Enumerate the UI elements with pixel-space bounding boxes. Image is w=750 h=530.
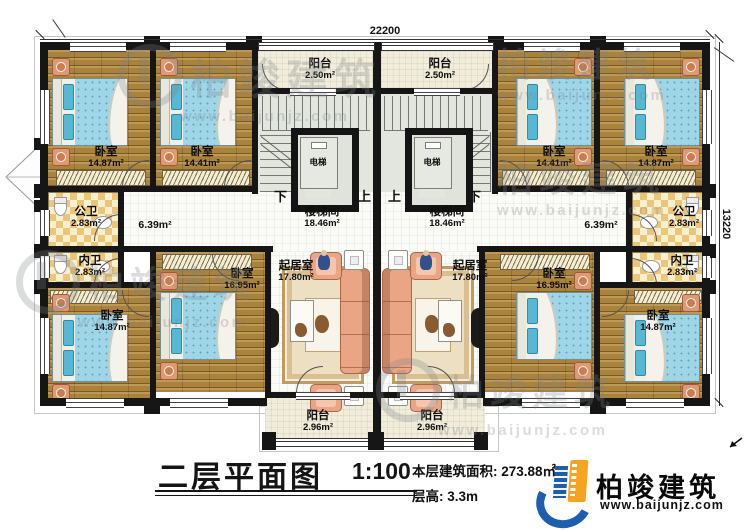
nightstand	[574, 362, 592, 380]
room-label-corridor: 6.39m²	[133, 220, 177, 232]
room-label-balcony: 阳台2.96m²	[293, 410, 343, 433]
sheet-scale: 1:100	[352, 458, 411, 485]
tv	[271, 308, 279, 348]
wall	[150, 42, 156, 192]
window	[626, 398, 684, 408]
window	[522, 398, 580, 408]
window	[40, 318, 50, 374]
nightstand	[160, 362, 178, 380]
wall	[40, 246, 273, 252]
floor-height-row: 层高: 3.3m	[412, 485, 478, 505]
balcony-door-window	[296, 392, 350, 400]
pilaster	[34, 138, 40, 150]
window	[40, 90, 50, 144]
window	[702, 90, 712, 144]
room-label-living: 起居室17.80m²	[440, 260, 500, 283]
stair-steps	[262, 96, 370, 131]
room-label-public-bath: 公卫2.83m²	[56, 206, 116, 229]
pilaster	[34, 184, 40, 198]
elevator-label: 电梯	[412, 158, 452, 167]
bed	[52, 78, 128, 146]
brand-logo-building-blue	[553, 466, 568, 498]
title-underline	[155, 490, 417, 496]
tv	[471, 308, 479, 348]
sofa	[382, 268, 412, 374]
wall	[492, 186, 710, 192]
bed	[516, 292, 592, 360]
room-label-stair-hall: 楼梯间18.46m²	[416, 206, 478, 229]
wall	[373, 42, 381, 446]
room-label-private-bath: 内卫2.83m²	[60, 255, 120, 278]
bed	[160, 78, 236, 146]
balcony-post	[474, 432, 488, 450]
balcony-railing	[381, 438, 487, 447]
balcony-door-window	[400, 392, 454, 400]
room-label-corridor: 6.39m²	[579, 220, 623, 232]
wall	[40, 186, 258, 192]
pilaster	[710, 280, 716, 294]
elevator-door-gap	[305, 189, 331, 198]
room-label-bedroom: 卧室14.87m²	[628, 310, 688, 333]
coffee-table	[438, 300, 462, 342]
dimension-line-top	[40, 39, 710, 40]
room-label-stair-hall: 楼梯间18.46m²	[291, 206, 353, 229]
leader-line	[714, 47, 734, 62]
dimension-right-value: 13220	[720, 204, 732, 244]
bed	[516, 78, 592, 146]
window	[66, 398, 124, 408]
room-label-balcony: 阳台2.50m²	[295, 58, 345, 81]
room-label-bedroom: 卧室14.87m²	[82, 310, 142, 333]
wall	[594, 42, 600, 192]
room-label-bedroom: 卧室14.41m²	[524, 146, 584, 169]
room-label-bedroom: 卧室14.41m²	[172, 146, 232, 169]
brand-logo-building-orange	[568, 460, 589, 502]
person-figure	[420, 254, 432, 270]
floor-plan-sheet: 电梯 电梯 下 上 上 下 卧室14.87m² 卧室14.41m² 卧室14.4…	[0, 0, 750, 530]
stair-down-label: 下	[468, 186, 481, 205]
window	[170, 42, 226, 52]
pilaster	[710, 184, 716, 198]
stair-steps	[384, 96, 488, 131]
window	[624, 42, 680, 52]
elevator-door-gap	[419, 189, 445, 198]
room-label-bedroom: 卧室14.87m²	[626, 146, 686, 169]
side-table	[344, 250, 364, 270]
balcony-railing	[258, 42, 375, 51]
wall	[150, 252, 156, 398]
balcony-post	[262, 432, 276, 450]
nightstand	[52, 148, 70, 166]
bed	[624, 78, 700, 146]
window	[290, 88, 336, 96]
window	[40, 210, 50, 236]
brand-logo	[538, 458, 602, 518]
nightstand	[574, 58, 592, 76]
room-label-public-bath: 公卫2.83m²	[654, 206, 714, 229]
stair-up-label: 上	[358, 186, 371, 205]
bed	[160, 292, 236, 360]
side-table	[388, 250, 408, 270]
wall	[252, 42, 258, 194]
wall	[626, 192, 632, 288]
window	[170, 398, 228, 408]
nightstand	[682, 58, 700, 76]
room-label-balcony: 阳台2.96m²	[407, 410, 457, 433]
leader-line	[52, 19, 65, 38]
room-label-bedroom: 卧室16.95m²	[212, 268, 272, 291]
balcony-post	[368, 432, 384, 450]
pilaster	[144, 406, 160, 414]
nightstand	[160, 272, 178, 290]
window	[414, 88, 460, 96]
mouse-cursor-icon	[722, 436, 744, 454]
nightstand	[160, 58, 178, 76]
balcony-railing	[381, 42, 494, 51]
window	[70, 42, 126, 52]
sofa	[340, 268, 370, 374]
pilaster	[34, 280, 40, 294]
window	[40, 256, 50, 278]
nightstand	[52, 294, 70, 312]
room-label-private-bath: 内卫2.83m²	[652, 255, 712, 278]
pilaster	[34, 200, 40, 212]
wall	[492, 42, 498, 194]
pilaster	[590, 406, 606, 414]
wall	[594, 252, 600, 398]
dimension-top-value: 22200	[355, 25, 415, 37]
room-label-bedroom: 卧室16.95m²	[524, 268, 584, 291]
floor-area-row: 本层建筑面积: 273.88㎡	[412, 460, 556, 480]
floor-area-label: 本层建筑面积:	[412, 464, 498, 479]
pilaster	[34, 244, 40, 258]
room-label-bedroom: 卧室14.87m²	[76, 146, 136, 169]
window	[702, 318, 712, 374]
coffee-table	[290, 300, 314, 342]
floor-height-label: 层高:	[412, 489, 444, 504]
brand-url: www.baijunjz.com	[600, 498, 724, 512]
wall	[40, 282, 156, 288]
stair-down-label: 下	[274, 186, 287, 205]
stair-up-label: 上	[388, 186, 401, 205]
elevator-label: 电梯	[298, 158, 338, 167]
wall	[594, 282, 710, 288]
window	[524, 42, 580, 52]
room-label-balcony: 阳台2.50m²	[415, 58, 465, 81]
room-label-living: 起居室17.80m²	[266, 260, 326, 283]
balcony-railing	[265, 438, 375, 447]
nightstand	[52, 58, 70, 76]
floor-height-value: 3.3m	[447, 489, 478, 504]
